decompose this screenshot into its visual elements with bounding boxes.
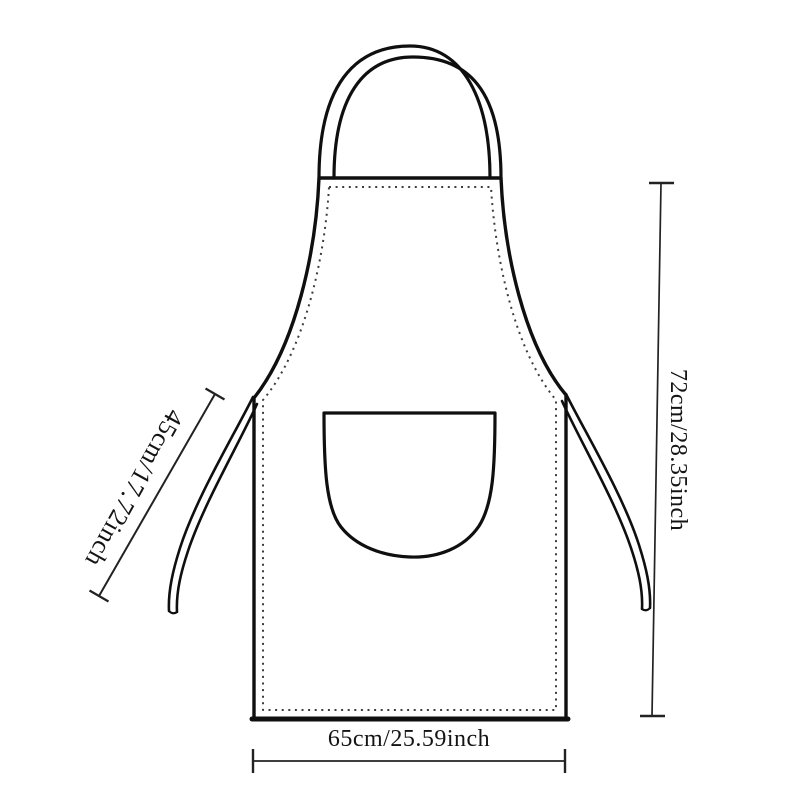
neck-strap-inner-arc [334, 57, 501, 178]
dimension-lines [90, 183, 675, 773]
dimension-label-height: 72cm/28.35inch [666, 369, 690, 531]
dimension-label-width: 65cm/25.59inch [328, 727, 490, 751]
apron-artwork [169, 46, 650, 719]
neck-strap-outer-arc [319, 46, 490, 178]
dimension-line-width [253, 749, 565, 773]
apron-body-outline [254, 178, 566, 719]
apron-dimension-diagram: 45cm/17.72inch 72cm/28.35inch 65cm/25.59… [0, 0, 800, 800]
waist-tie-left-inner [177, 404, 257, 612]
waist-tie-right-inner [562, 401, 642, 609]
pocket [324, 413, 495, 557]
